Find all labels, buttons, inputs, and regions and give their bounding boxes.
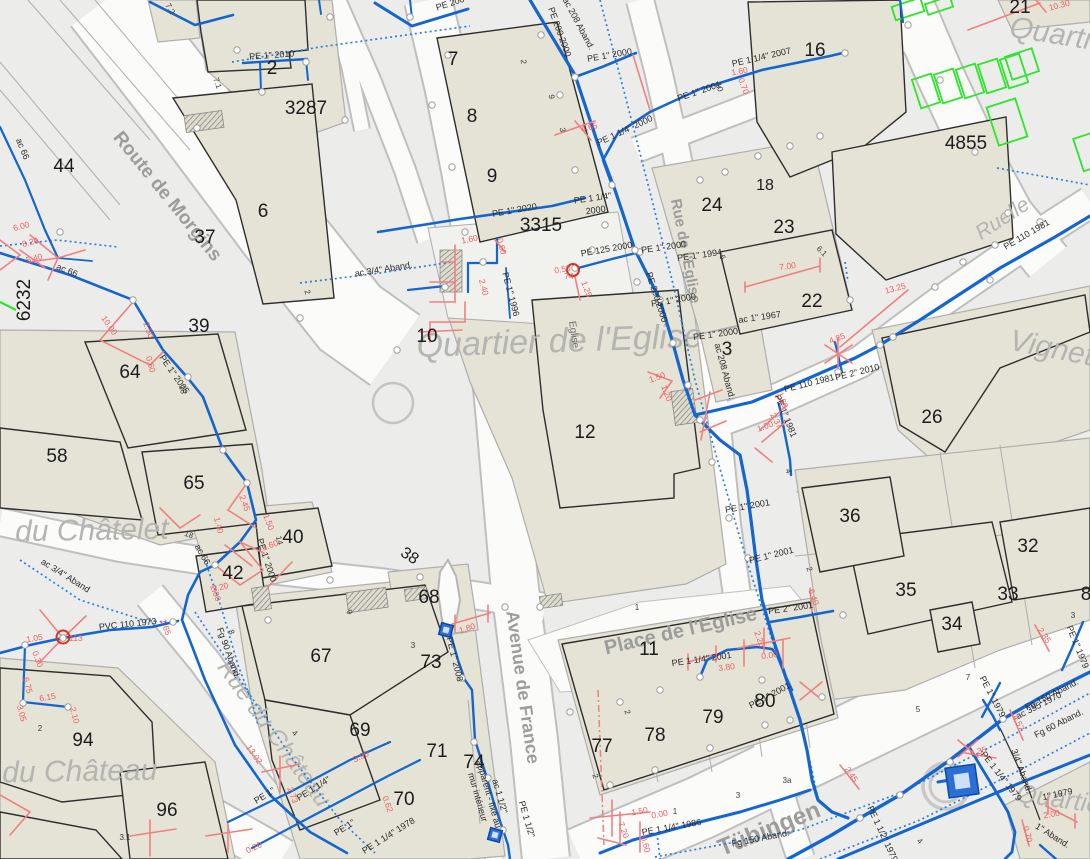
parcel-number-label: 11 xyxy=(639,639,659,660)
parcel-number-label: 58 xyxy=(46,446,67,467)
parcel-number-label: 96 xyxy=(156,800,177,821)
survey-node xyxy=(617,699,623,705)
parcel-number-label: 69 xyxy=(349,720,370,741)
survey-node xyxy=(847,297,853,303)
survey-node xyxy=(890,334,896,340)
survey-node xyxy=(755,153,761,159)
house-number-label: 7 xyxy=(966,673,971,682)
parcel-number-label: 94 xyxy=(72,730,94,751)
parcel-number-label: 21 xyxy=(1009,0,1030,18)
parcel-number-label: 32 xyxy=(1017,536,1038,557)
survey-node xyxy=(819,694,825,700)
survey-node xyxy=(937,77,943,83)
house-number-label: 1 xyxy=(635,603,640,612)
parcel-number-label: 7 xyxy=(448,49,459,70)
survey-node xyxy=(567,709,573,715)
survey-node xyxy=(759,677,765,683)
parcel-number-label: 4855 xyxy=(945,133,987,154)
survey-node xyxy=(234,47,240,53)
survey-node xyxy=(897,792,903,798)
parcel-number-label: 6 xyxy=(258,201,269,222)
survey-node xyxy=(992,242,998,248)
house-number-label: 1 xyxy=(673,807,678,816)
survey-node xyxy=(471,739,477,745)
survey-node xyxy=(449,164,455,170)
parcel-number-label: 36 xyxy=(839,506,860,527)
survey-node xyxy=(842,50,848,56)
parcel-number-label: 8 xyxy=(467,106,478,127)
survey-node xyxy=(709,459,715,465)
survey-node xyxy=(697,674,703,680)
parcel-number-label: 37 xyxy=(194,227,215,248)
survey-node xyxy=(194,125,200,131)
parcel-number-label: 18 xyxy=(756,177,774,194)
house-number-label: 3a xyxy=(783,776,792,785)
survey-node xyxy=(480,259,486,265)
survey-node xyxy=(632,247,638,253)
valve-symbol-inner xyxy=(954,773,971,790)
survey-node xyxy=(697,177,703,183)
parcel-number-label: 12 xyxy=(574,422,595,443)
parcel-number-label: 78 xyxy=(644,725,665,746)
survey-node xyxy=(726,515,732,521)
survey-node xyxy=(429,102,435,108)
parcel-number-label: 68 xyxy=(418,587,439,608)
survey-node xyxy=(722,169,728,175)
survey-node xyxy=(442,284,448,290)
house-number-label: 3.1 xyxy=(119,833,131,842)
street-name-label: du Châtelet xyxy=(15,513,171,549)
survey-node xyxy=(407,14,413,20)
parcel-number-label: 26 xyxy=(921,407,942,428)
survey-node xyxy=(877,342,883,348)
parcel-number-label: 77 xyxy=(591,736,612,757)
survey-node xyxy=(265,617,271,623)
survey-node xyxy=(840,612,846,618)
pipe-line xyxy=(260,62,261,90)
survey-node xyxy=(634,279,640,285)
parcel-number-label: 79 xyxy=(702,707,723,728)
street-name-label: du Château xyxy=(2,754,158,790)
survey-node xyxy=(244,480,250,486)
survey-node xyxy=(185,374,191,380)
survey-node xyxy=(652,767,658,773)
valve-symbol xyxy=(488,828,503,843)
parcel-number-label: 16 xyxy=(804,40,825,61)
survey-node xyxy=(607,782,613,788)
survey-node xyxy=(417,574,423,580)
gis-map-viewport[interactable]: Route de MorginsAvenue de FranceRue de l… xyxy=(0,0,1090,859)
survey-node xyxy=(685,382,691,388)
parcel-number-label: 65 xyxy=(183,473,204,494)
survey-node xyxy=(697,417,703,423)
survey-node xyxy=(297,315,303,321)
survey-node xyxy=(947,759,953,765)
parcel-number-label: 39 xyxy=(188,316,209,337)
parcel-number-label: 44 xyxy=(53,156,75,177)
parcel-number-label: 71 xyxy=(426,741,447,762)
survey-node xyxy=(220,447,226,453)
parcel-number-label: 40 xyxy=(282,527,303,548)
dimension-label: 74 xyxy=(564,271,574,281)
parcel-number-label: 23 xyxy=(773,217,794,238)
parcel-number-label: 24 xyxy=(701,195,723,216)
survey-node xyxy=(342,117,348,123)
parcel-number-label: 33 xyxy=(997,584,1018,605)
survey-node xyxy=(857,815,863,821)
survey-node xyxy=(303,59,309,65)
parcel-number-label: 64 xyxy=(119,362,141,383)
survey-node xyxy=(259,89,265,95)
survey-node xyxy=(987,277,993,283)
survey-node xyxy=(960,259,966,265)
house-number-label: 3 xyxy=(1071,611,1076,620)
valve-symbol xyxy=(439,623,454,638)
survey-node xyxy=(130,297,136,303)
survey-node xyxy=(557,92,563,98)
survey-node xyxy=(60,635,66,641)
survey-node xyxy=(394,347,400,353)
survey-node xyxy=(327,14,333,20)
survey-node xyxy=(572,167,578,173)
survey-node xyxy=(609,182,615,188)
parcel-number-label: 35 xyxy=(895,580,916,601)
parcel-number-label: 10 xyxy=(416,326,437,347)
parcel-number-label: 34 xyxy=(941,614,963,635)
house-number-label: 3 xyxy=(411,641,416,650)
survey-node xyxy=(537,604,543,610)
survey-node xyxy=(657,687,663,693)
house-number-label: 3 xyxy=(736,791,741,800)
parcel-number-label: 73 xyxy=(420,652,441,673)
survey-node xyxy=(762,722,768,728)
survey-node xyxy=(502,604,508,610)
survey-node xyxy=(327,577,333,583)
basemap-layer xyxy=(0,0,1090,859)
parcel-number-label: 2 xyxy=(267,58,278,79)
survey-node xyxy=(572,74,578,80)
survey-node xyxy=(787,143,793,149)
house-number-label: 5 xyxy=(916,705,921,714)
survey-node xyxy=(817,133,823,139)
parcel-number-label: 3315 xyxy=(520,215,562,236)
survey-node xyxy=(905,22,911,28)
survey-node xyxy=(602,222,608,228)
survey-node xyxy=(538,32,544,38)
parcel-number-label: 67 xyxy=(310,646,331,667)
survey-node xyxy=(707,745,713,751)
survey-node xyxy=(57,229,63,235)
parcel-number-label: 8 xyxy=(1081,584,1090,605)
parcel-number-label: 70 xyxy=(393,789,414,810)
survey-node xyxy=(1005,210,1011,216)
parcel-number-label: 3287 xyxy=(285,98,327,119)
valve-symbol xyxy=(945,764,979,798)
survey-node xyxy=(787,717,793,723)
survey-node xyxy=(670,340,676,346)
survey-node xyxy=(932,284,938,290)
stairs-hatch xyxy=(251,586,271,611)
survey-node xyxy=(212,562,218,568)
parcel-number-label: 9 xyxy=(487,166,498,187)
parcel-number-label: 22 xyxy=(801,291,822,312)
map-canvas[interactable]: Route de MorginsAvenue de FranceRue de l… xyxy=(0,0,1090,859)
dimension-label: 113 xyxy=(69,633,83,643)
house-number-label: 2 xyxy=(38,724,43,733)
parcel-number-label: 6232 xyxy=(14,279,35,321)
